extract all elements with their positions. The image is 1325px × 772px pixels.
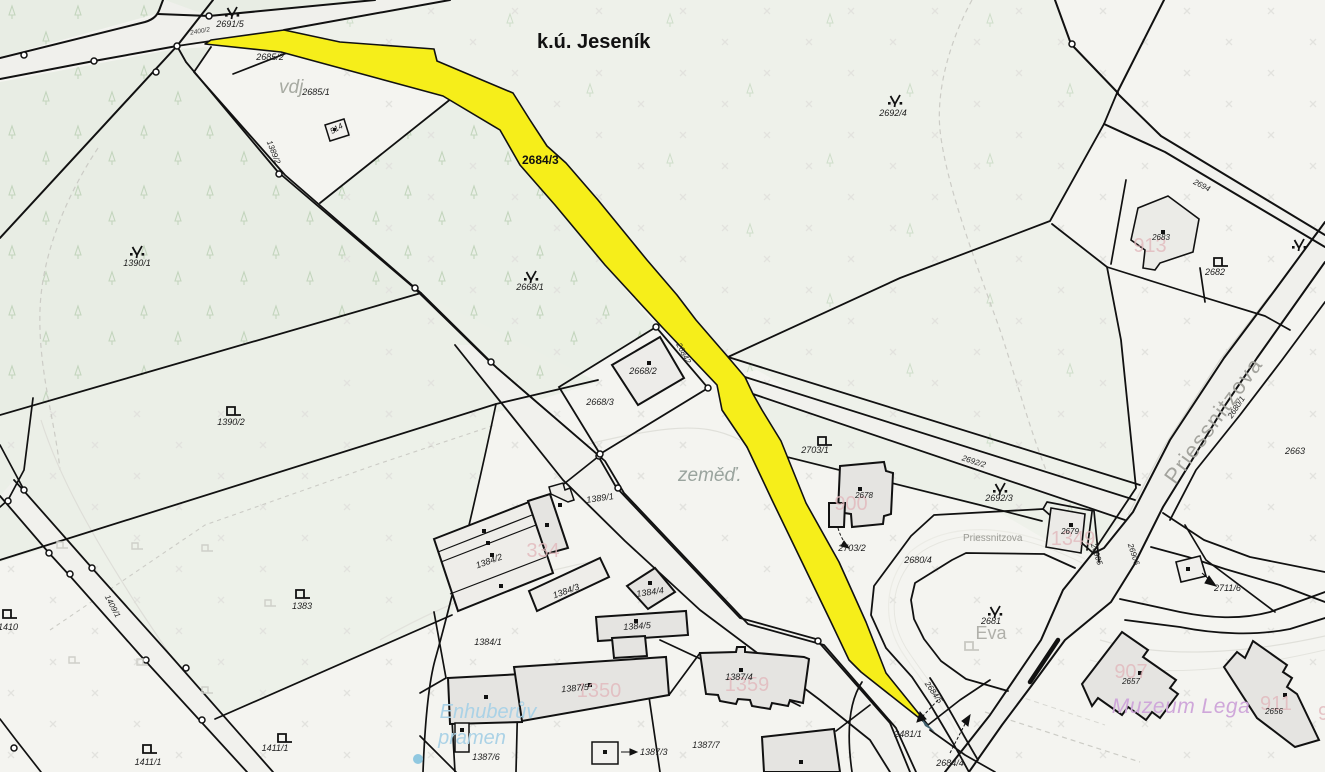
svg-text:2711/6: 2711/6: [1213, 583, 1241, 593]
svg-text:1411/1: 1411/1: [262, 743, 289, 753]
svg-text:2692/3: 2692/3: [984, 493, 1013, 503]
svg-text:pramen: pramen: [437, 727, 506, 749]
svg-text:Enhuberův: Enhuberův: [440, 701, 538, 723]
svg-text:k.ú. Jeseník: k.ú. Jeseník: [537, 31, 651, 53]
svg-text:2656: 2656: [1264, 707, 1283, 716]
svg-text:1387/7: 1387/7: [692, 740, 721, 750]
svg-text:2668/3: 2668/3: [585, 397, 614, 407]
svg-text:1387/3: 1387/3: [640, 747, 668, 757]
svg-text:2692/4: 2692/4: [878, 108, 907, 118]
svg-text:2703/2: 2703/2: [837, 543, 866, 553]
svg-text:1390/2: 1390/2: [217, 417, 245, 427]
svg-text:1383: 1383: [292, 601, 312, 611]
svg-text:1387/6: 1387/6: [472, 752, 500, 762]
svg-text:2678: 2678: [854, 491, 873, 500]
svg-text:1387/4: 1387/4: [725, 672, 753, 682]
svg-text:2684/4: 2684/4: [935, 758, 964, 768]
svg-text:Priessnitzova: Priessnitzova: [963, 533, 1023, 544]
svg-text:2680/4: 2680/4: [903, 555, 932, 565]
svg-text:2685/2: 2685/2: [255, 52, 284, 62]
svg-text:Eva: Eva: [975, 623, 1007, 643]
svg-text:1390/1: 1390/1: [123, 258, 151, 268]
svg-text:2691/5: 2691/5: [215, 19, 245, 29]
svg-text:2481/1: 2481/1: [893, 729, 922, 739]
svg-text:2679: 2679: [1060, 527, 1079, 536]
svg-text:1384/5: 1384/5: [623, 620, 652, 632]
svg-text:Muzeum Lega: Muzeum Lega: [1112, 695, 1251, 718]
svg-text:2663: 2663: [1284, 446, 1305, 456]
svg-text:1411/1: 1411/1: [135, 757, 162, 767]
svg-text:2703/1: 2703/1: [800, 445, 829, 455]
svg-text:2657: 2657: [1121, 677, 1140, 686]
svg-text:2668/2: 2668/2: [628, 366, 657, 376]
svg-text:1410: 1410: [0, 622, 18, 632]
svg-text:2682: 2682: [1204, 267, 1225, 277]
svg-text:2683: 2683: [1151, 233, 1170, 242]
svg-text:2684/3: 2684/3: [522, 153, 559, 167]
svg-text:1384/1: 1384/1: [474, 637, 502, 647]
svg-text:2668/1: 2668/1: [515, 282, 544, 292]
svg-text:9: 9: [1318, 703, 1325, 725]
svg-text:vdj.: vdj.: [279, 77, 309, 98]
svg-text:zeměď.: zeměď.: [677, 465, 742, 486]
svg-text:334: 334: [526, 540, 559, 562]
